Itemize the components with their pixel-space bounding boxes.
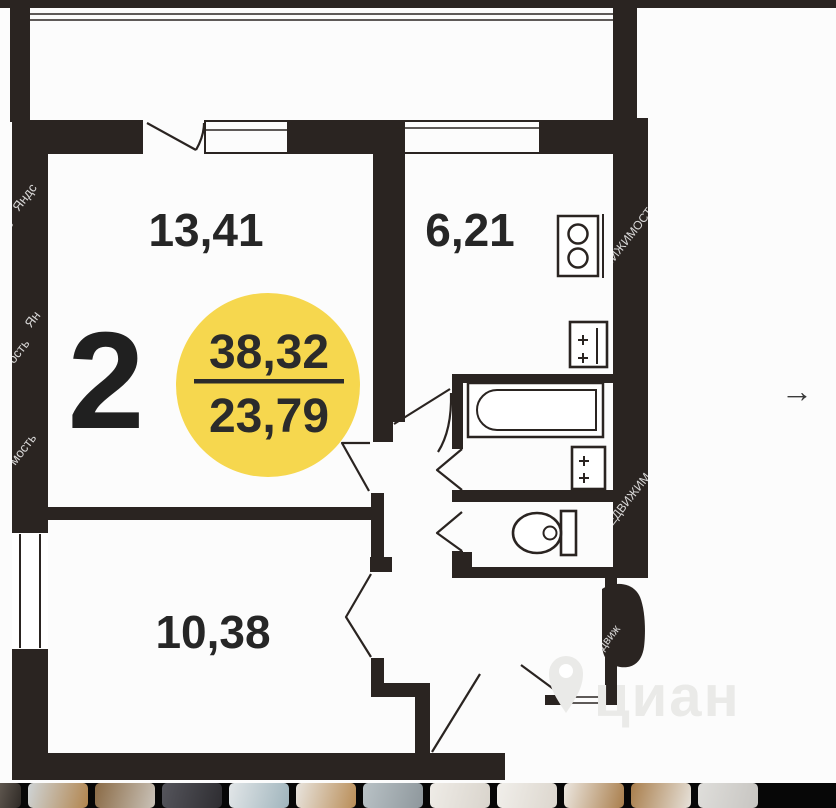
kitchen-area-label: 6,21 (425, 204, 515, 256)
living-area-value: 23,79 (209, 390, 329, 443)
gallery-thumbnail[interactable] (95, 783, 155, 808)
total-area-value: 38,32 (209, 326, 329, 379)
gallery-thumbnail[interactable] (28, 783, 88, 808)
vestibule-door (432, 674, 480, 752)
gallery-thumbnail[interactable] (296, 783, 356, 808)
top-bar (0, 0, 836, 8)
balcony-door (147, 123, 204, 150)
area-badge: 38,32 23,79 (176, 293, 360, 477)
bedroom-area-label: 10,38 (155, 606, 270, 658)
stove-icon (558, 214, 603, 278)
kitchen-sink-icon (570, 322, 607, 367)
fraction-bar (194, 379, 344, 384)
next-arrow-icon: → (781, 373, 813, 409)
gallery-thumbnail[interactable] (0, 783, 21, 808)
toilet-icon (513, 511, 576, 555)
gallery-thumbnail[interactable] (497, 783, 557, 808)
bathtub-icon (468, 383, 603, 437)
cian-watermark: циан (549, 656, 741, 729)
bedroom-window (12, 533, 48, 649)
gallery-thumbnail[interactable] (229, 783, 289, 808)
gallery-thumbnail[interactable] (430, 783, 490, 808)
living-room-door (342, 443, 370, 491)
bathroom-sink-icon (572, 447, 605, 489)
gallery-thumbnail[interactable] (162, 783, 222, 808)
rooms-count-label: 2 (68, 304, 145, 458)
fixtures (468, 214, 607, 555)
bedroom-door (346, 574, 371, 657)
area-badge-circle (176, 293, 360, 477)
living-room-area-label: 13,41 (148, 204, 263, 256)
balcony-window-room (205, 121, 288, 153)
listing-media-viewer: Яндс сть Ян ость мость ДВИЖИМОСТ НЕДВИЖИ… (0, 0, 836, 808)
gallery-thumbnail[interactable] (564, 783, 624, 808)
bathroom-door (437, 449, 462, 490)
cian-logo-text: циан (594, 664, 741, 729)
wc-door (437, 512, 462, 551)
thumbnail-strip[interactable] (0, 783, 836, 808)
next-arrow-button[interactable]: → (774, 368, 820, 414)
gallery-thumbnail[interactable] (363, 783, 423, 808)
gallery-thumbnail[interactable] (698, 783, 758, 808)
balcony-window-kitchen (395, 121, 540, 153)
gallery-thumbnail[interactable] (631, 783, 691, 808)
floor-plan-image: Яндс сть Ян ость мость ДВИЖИМОСТ НЕДВИЖИ… (0, 0, 836, 783)
